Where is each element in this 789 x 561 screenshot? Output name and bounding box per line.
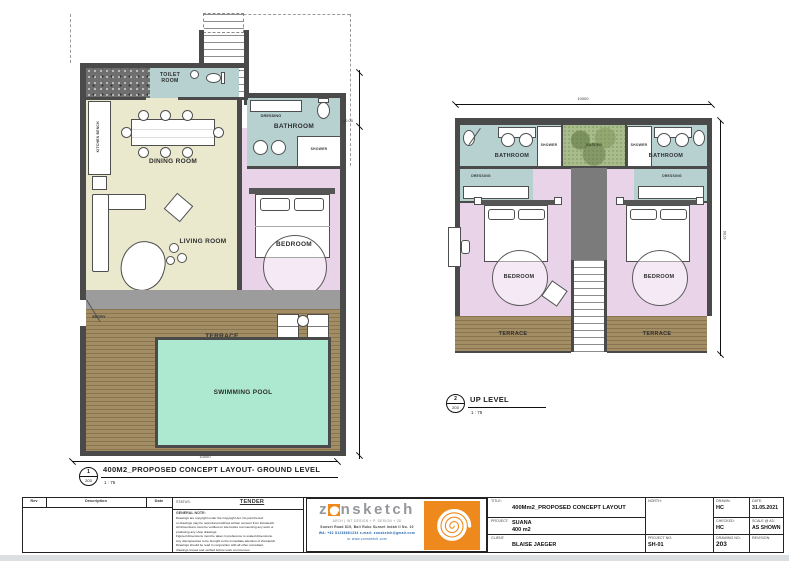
wc-tank [318,98,329,103]
view-title: 400M2_PROPOSED CONCEPT LAYOUT- GROUND LE… [103,465,320,474]
dressing-bench [638,186,704,199]
table-line [713,517,784,518]
client-label: CLIENT: [491,536,504,540]
wall [455,118,460,316]
title-value: 400Mm2_PROPOSED CONCEPT LAYOUT [512,505,626,511]
deck-edge [86,290,340,309]
swimming-pool-label: SWIMMING POOL [214,389,273,396]
view-title-underline [468,407,546,408]
table-line [22,507,172,508]
side-table [177,253,187,263]
drawing-no-value: 203 [716,541,727,548]
pillow [660,209,687,220]
scale-a3-value: AS SHOWN [752,525,781,531]
drawn-value: HC [716,505,724,511]
level-mark: ±0.00 [343,119,353,123]
general-note-line: drawings issued and verified before work… [176,548,300,552]
basin [271,140,286,155]
pillow [260,198,290,211]
logo-contact: WA: +62 81236661234 e-mail: zonsketch@gm… [319,532,415,536]
toilet-sink [190,70,199,79]
living-room-label: LIVING ROOM [180,238,227,245]
dressing-right-label: DRESSING [662,175,682,179]
dining-chair [138,147,149,158]
callout-number: 1 [80,468,97,477]
revision-label: REVISION: [752,536,770,540]
shower-label: SHOWER [311,148,328,152]
dining-table [131,119,215,146]
terrace-right-label: TERRACE [643,331,672,337]
project-name: SUANA [512,520,532,526]
table-line [487,497,488,553]
callout-number: 2 [447,395,464,404]
toilet-room-label: TOILET ROOM [152,73,188,84]
side-table [166,256,175,265]
basin [519,133,533,147]
description-header: Description [85,499,107,503]
basin [675,133,689,147]
desk [448,227,461,267]
logo-wordmark: z nsketch [312,501,422,518]
basin [501,133,515,147]
project-area: 400 m2 [512,527,531,533]
bedroom-left-label: BEDROOM [504,274,535,280]
logo-tagline: ARCH | INT DESIGN + P. DESIGN + 3D [332,520,401,524]
status-label: STATUS: [176,500,191,504]
title-label: TITLE: [491,499,502,503]
terrace-table [297,315,309,327]
view-scale: 1 : 75 [104,480,115,485]
desk-chair [461,240,470,254]
table-line [487,517,645,518]
logo-word-start: z [319,502,327,517]
table-line [46,497,47,507]
wall [707,118,712,316]
table-line [713,497,714,553]
bathroom-right-label: BATHROOM [649,153,683,159]
table-line [645,497,646,553]
wall [86,97,146,100]
dimension-label: 9700 [723,231,727,240]
garden-label: GARDEN [586,144,602,148]
logo-spiral-small-icon [328,504,340,516]
table-line [172,497,173,553]
toilet-wc [206,73,221,83]
lounger-line [308,326,328,327]
table-line [749,497,750,553]
bedside-table [696,197,704,205]
dining-chair [138,110,149,121]
side-table [169,243,179,253]
lounger-line [278,326,298,327]
project-no-label: PROJECT NO: [648,536,672,540]
bathroom-label: BATHROOM [274,123,314,130]
date-label: DATE: [752,499,762,503]
wc [693,130,705,146]
dressing-label: DRESSING [261,114,282,118]
sofa [92,194,109,272]
view-callout: 1 203 [79,467,98,486]
callout-sheet: 203 [80,477,97,484]
checked-label: CHECKED: [716,519,735,523]
entry-label: ENTRY [92,315,105,319]
construction-line [350,14,351,166]
table-line [172,509,303,510]
wall [571,260,574,352]
logo-spiral-large-icon [424,501,480,550]
date-header: Date [155,499,164,503]
logo-word-end: nsketch [341,502,415,517]
logo-web: or www.zonsketch.com [347,538,387,542]
table-line [645,534,784,535]
rev-header: Rev [30,499,37,503]
dimension-line [720,120,721,356]
dressing-bench [250,100,302,112]
north-label: NORTH: [648,499,662,503]
terrace-edge [455,351,571,353]
wall [237,97,242,290]
dining-chair [160,147,171,158]
dimension-line [455,104,712,105]
logo-address: Sunset Road 819, Bali Ruko Sunset Indah … [320,526,413,530]
kitchen-sink [92,176,107,190]
drawing-sheet: TOILET ROOM KITCHEN BENCH DINING ROOM LI… [0,0,789,561]
dimension-label: 10000 [577,97,588,101]
wc [317,102,330,119]
pillow [518,209,545,220]
dining-chair [160,110,171,121]
dressing-left-label: DRESSING [471,175,491,179]
pillow [630,209,657,220]
dressing-bench [463,186,529,199]
scale-a3-label: SCALE @ A3: [752,519,775,523]
project-no-value: SH-01 [648,542,664,548]
checked-value: HC [716,525,724,531]
stairs [574,260,604,352]
project-label: PROJECT: [491,519,508,523]
dining-chair [213,127,224,138]
view-title-underline [101,477,338,478]
shower-right-label: SHOWER [631,144,648,148]
floor-gravel [86,68,150,98]
bedroom-right-label: BEDROOM [644,274,675,280]
bedside-table [474,197,482,205]
wall [455,118,712,125]
dimension-label: 10000 [199,455,210,459]
stair-core [571,168,607,260]
bathroom-left-label: BATHROOM [495,153,529,159]
table-line [487,534,645,535]
dining-room-label: DINING ROOM [149,158,197,165]
basin [253,140,268,155]
toilet-wc-tank [221,72,225,84]
dining-chair [121,127,132,138]
general-note-label: GENERAL NOTE: [176,511,206,515]
terrace-edge [607,351,707,353]
drawn-label: DRAWN: [716,499,730,503]
view-scale: 1 : 75 [471,410,482,415]
basin [657,133,671,147]
page-edge [0,555,789,561]
bedside-table [554,197,562,205]
status-value: TENDER [240,499,264,505]
pillow [488,209,515,220]
blanket-line [255,226,330,227]
wall [604,260,607,352]
dimension-line [72,461,338,462]
bedroom-label: BEDROOM [276,241,312,248]
shower-left-label: SHOWER [541,144,558,148]
date-value: 31.05.2021 [752,505,778,511]
dining-chair [182,110,193,121]
callout-sheet: 203 [447,404,464,411]
pillow [294,198,324,211]
entry-opening [80,300,86,326]
table-line [303,497,304,553]
terrace-left-label: TERRACE [499,331,528,337]
dining-chair [182,147,193,158]
drawing-no-label: DRAWING NO: [716,536,741,540]
view-title: UP LEVEL [470,395,509,404]
view-callout: 2 203 [446,394,465,413]
construction-line [70,14,71,63]
kitchen-bench-label: KITCHEN BENCH [97,121,101,152]
table-line [146,497,147,507]
stairs-dashed-top [203,13,244,33]
client-value: BLAISE JAEGER [512,542,556,548]
bedside-table [616,197,624,205]
